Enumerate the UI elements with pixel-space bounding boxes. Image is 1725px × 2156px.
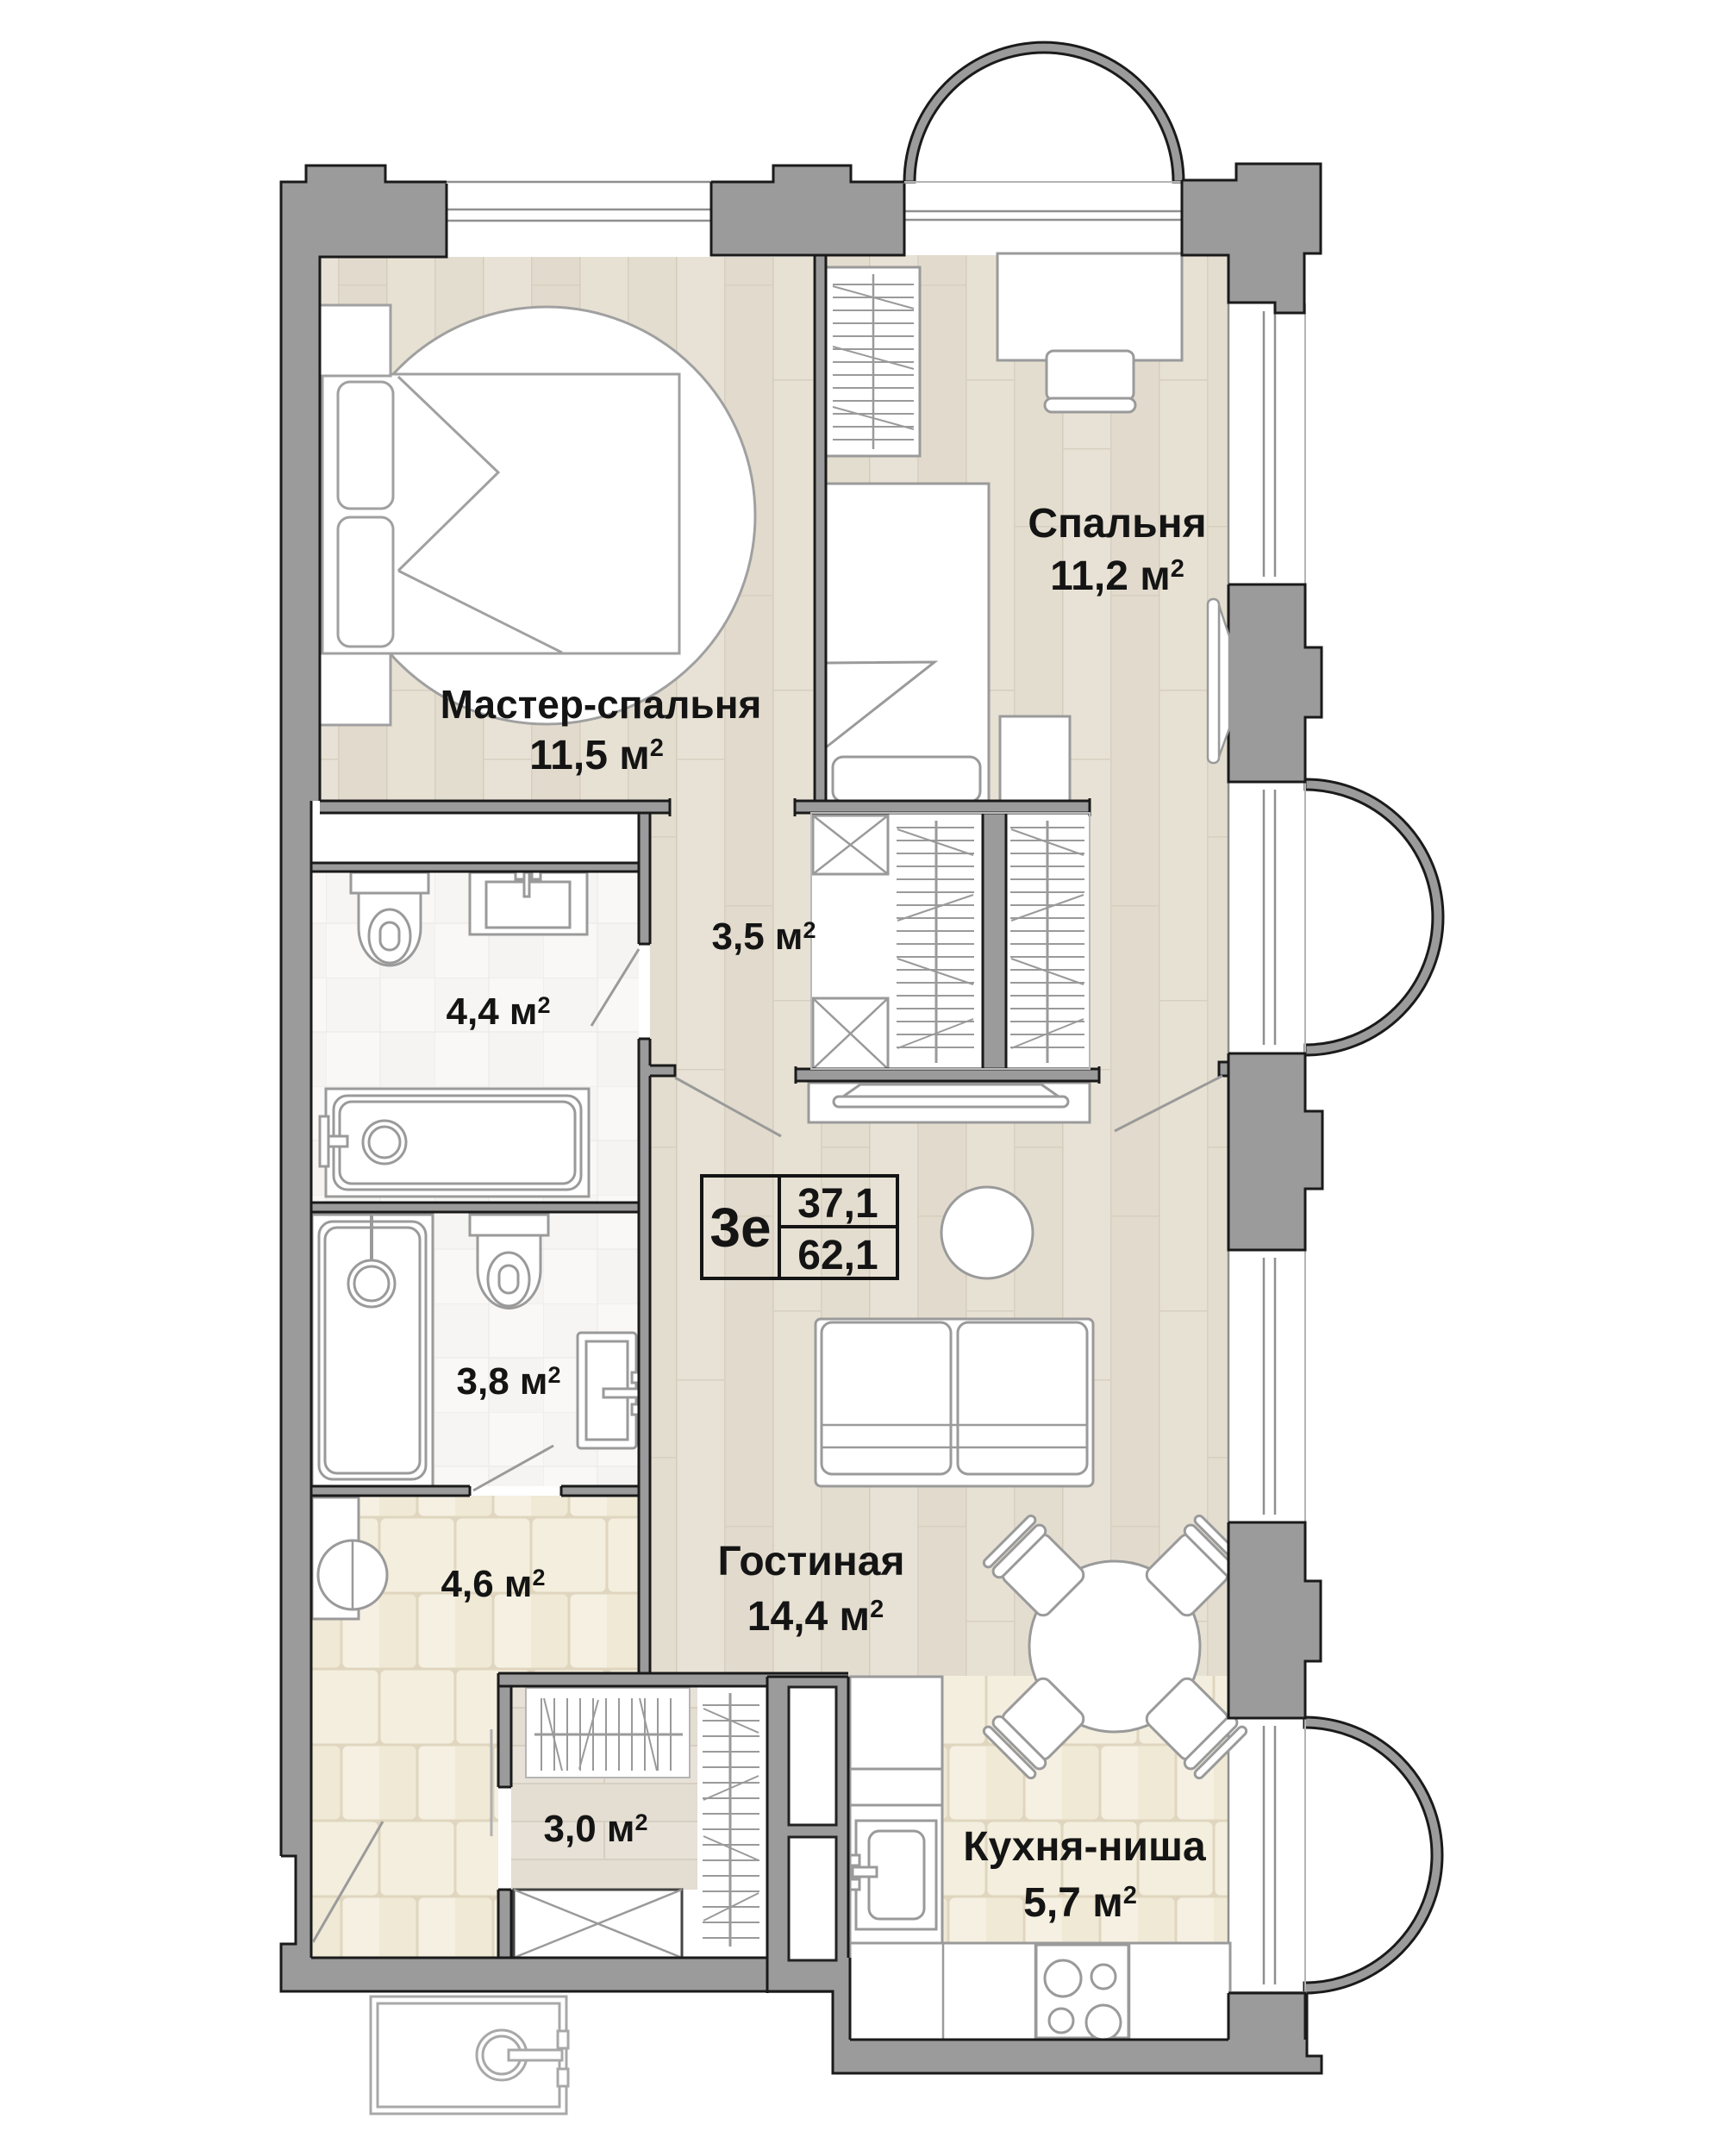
svg-text:3,0 м2: 3,0 м2 [544,1808,648,1850]
svg-text:5,7 м2: 5,7 м2 [1023,1880,1137,1926]
svg-text:3,8 м2: 3,8 м2 [457,1360,561,1403]
svg-text:14,4 м2: 14,4 м2 [747,1594,884,1640]
svg-text:3,5 м2: 3,5 м2 [712,916,816,958]
svg-text:11,2 м2: 11,2 м2 [1050,553,1184,599]
svg-text:Мастер-спальня: Мастер-спальня [441,682,762,727]
svg-text:Спальня: Спальня [1028,501,1206,547]
svg-text:3е: 3е [709,1197,771,1259]
svg-text:4,6 м2: 4,6 м2 [441,1563,546,1605]
svg-text:11,5 м2: 11,5 м2 [529,733,664,778]
svg-text:37,1: 37,1 [797,1181,878,1227]
svg-text:Гостиная: Гостиная [718,1539,905,1584]
svg-text:4,4 м2: 4,4 м2 [447,991,551,1033]
svg-text:62,1: 62,1 [797,1233,878,1278]
svg-text:Кухня-ниша: Кухня-ниша [963,1824,1206,1870]
